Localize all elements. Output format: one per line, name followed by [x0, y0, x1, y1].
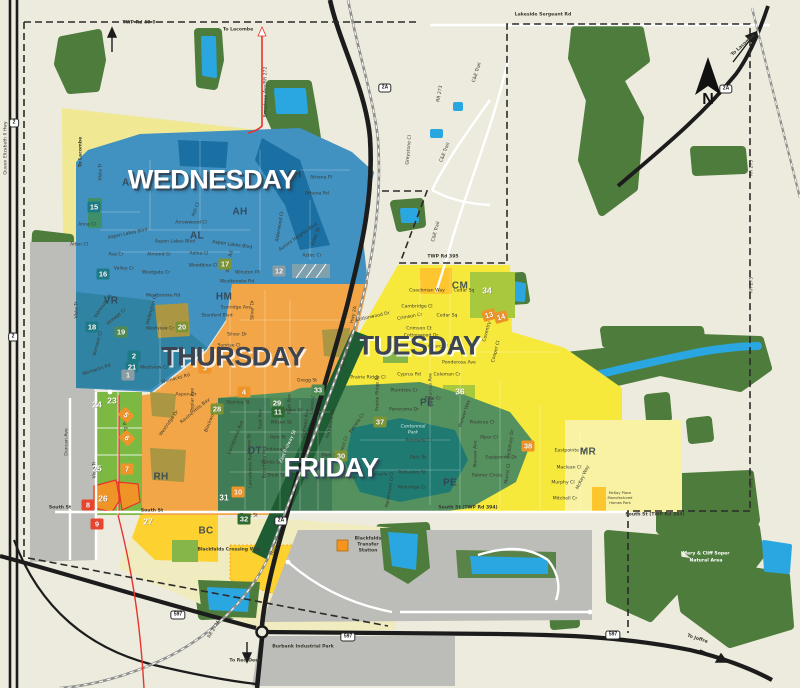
roundabout — [257, 627, 268, 638]
centennial-park — [345, 418, 468, 502]
pond-burbank-2 — [470, 556, 548, 574]
wednesday-lake-2 — [178, 140, 228, 168]
industrial-burbank-south — [252, 636, 455, 686]
bc-green-patch — [172, 540, 198, 562]
wednesday-park — [88, 198, 102, 228]
green-patch-tuesday — [383, 352, 408, 363]
green-square-34 — [470, 272, 515, 318]
pond-burbank — [388, 532, 418, 570]
basemap-shapes — [0, 0, 800, 688]
transfer-station-icon — [337, 540, 348, 551]
gold-patch-mr — [592, 487, 606, 512]
collection-schedule-map: TWP Rd 40-0Lakeside Sergeant RdTo Lacomb… — [0, 0, 800, 688]
north-arrow-letter: N — [702, 91, 714, 109]
bc-pond — [207, 587, 250, 612]
